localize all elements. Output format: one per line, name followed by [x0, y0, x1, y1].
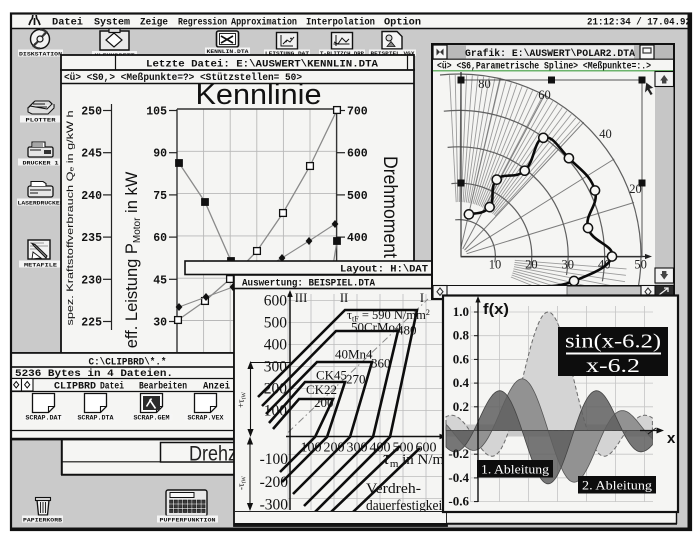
svg-text:-0.4: -0.4 [448, 470, 469, 485]
svg-text:sin(x-6.2): sin(x-6.2) [565, 331, 661, 353]
svg-text:Regression: Regression [178, 17, 227, 29]
svg-text:1. Ableitung: 1. Ableitung [481, 463, 550, 477]
svg-text:PAPIERKORB: PAPIERKORB [23, 517, 63, 524]
svg-text:270: 270 [346, 372, 366, 387]
svg-text:600: 600 [264, 293, 288, 310]
svg-text:Bearbeiten: Bearbeiten [139, 381, 187, 393]
svg-text:KENNLIN.DTA: KENNLIN.DTA [207, 48, 250, 55]
svg-text:METAFILE: METAFILE [24, 262, 58, 269]
svg-text:230: 230 [81, 274, 102, 287]
svg-text:200: 200 [314, 395, 334, 410]
svg-text:360: 360 [371, 356, 391, 371]
svg-text:SCRAP.DAT: SCRAP.DAT [26, 415, 62, 422]
svg-text:Approximation: Approximation [231, 17, 297, 29]
svg-text:spez. Kraftstoffverbrauch Qₑ i: spez. Kraftstoffverbrauch Qₑ in g/kW h [65, 110, 75, 325]
svg-text:CLIPBRD: CLIPBRD [54, 381, 96, 393]
svg-text:480: 480 [397, 323, 417, 338]
svg-text:2. Ableitung: 2. Ableitung [582, 479, 653, 493]
svg-text:400: 400 [347, 232, 368, 245]
svg-text:-0.6: -0.6 [448, 494, 469, 509]
svg-text:600: 600 [347, 148, 368, 161]
svg-text:Grafik: E:\AUSWERT\POLAR2.DTA: Grafik: E:\AUSWERT\POLAR2.DTA [465, 48, 636, 60]
svg-text:x: x [667, 430, 676, 447]
svg-text:0.8: 0.8 [453, 328, 470, 343]
svg-text:-300: -300 [260, 497, 289, 514]
svg-text:225: 225 [81, 317, 102, 330]
svg-text:II: II [340, 291, 348, 305]
svg-text:System: System [94, 17, 130, 29]
svg-text:C:\CLIPBRD\*.*: C:\CLIPBRD\*.* [89, 357, 167, 369]
svg-text:Zeige: Zeige [140, 17, 168, 29]
svg-text:I: I [420, 291, 424, 305]
svg-text:-100: -100 [260, 451, 289, 468]
svg-text:0.6: 0.6 [453, 351, 470, 366]
svg-text:PLOTTER: PLOTTER [26, 117, 57, 124]
svg-text:500: 500 [347, 190, 368, 203]
svg-text:SCRAP.VEX: SCRAP.VEX [188, 415, 224, 422]
svg-text:235: 235 [81, 232, 102, 245]
svg-text:Drehz: Drehz [189, 443, 237, 466]
svg-text:60: 60 [538, 88, 551, 102]
svg-text:60: 60 [153, 232, 167, 245]
svg-text:50: 50 [634, 258, 647, 272]
svg-text:Datei: Datei [52, 17, 83, 29]
svg-text:245: 245 [81, 148, 102, 161]
svg-text:20: 20 [525, 258, 538, 272]
svg-text:1.0: 1.0 [453, 304, 469, 319]
svg-text:30: 30 [562, 258, 575, 272]
svg-text:Datei: Datei [100, 381, 124, 393]
svg-text:Drehmoment: Drehmoment [379, 156, 400, 259]
svg-text:75: 75 [153, 190, 167, 203]
svg-text:0.2: 0.2 [453, 399, 469, 414]
svg-text:700: 700 [347, 106, 368, 119]
svg-text:DRUCKER 1: DRUCKER 1 [23, 160, 60, 167]
svg-text:eff. Leistung PMotor in kW: eff. Leistung PMotor in kW [123, 171, 143, 348]
svg-text:Letzte Datei: E:\AUSWERT\KENNL: Letzte Datei: E:\AUSWERT\KENNLIN.DTA [146, 59, 379, 71]
svg-text:30: 30 [153, 317, 167, 330]
svg-text:Layout: H:\DAT: Layout: H:\DAT [340, 264, 428, 276]
svg-text:90: 90 [153, 148, 167, 161]
svg-text:LASERDRUCKER: LASERDRUCKER [18, 200, 65, 207]
svg-text:III: III [295, 291, 308, 305]
svg-text:DISKSTATION: DISKSTATION [19, 51, 63, 58]
svg-text:<ü> <S6,Parametrische Spline>: <ü> <S6,Parametrische Spline> <Meßpunkte… [437, 61, 651, 72]
svg-text:x-6.2: x-6.2 [586, 355, 640, 377]
svg-text:45: 45 [153, 274, 167, 287]
svg-text:CK45: CK45 [316, 368, 347, 383]
svg-text:f(x): f(x) [483, 301, 509, 318]
svg-text:400: 400 [264, 337, 288, 354]
svg-text:Verdreh-: Verdreh- [366, 481, 421, 497]
svg-text:10: 10 [489, 258, 502, 272]
svg-text:SCRAP.DTA: SCRAP.DTA [78, 415, 114, 422]
svg-text:250: 250 [81, 106, 102, 119]
svg-text:50CrMo4: 50CrMo4 [351, 320, 402, 335]
svg-text:Anzei: Anzei [203, 381, 230, 393]
svg-text:Kennlinie: Kennlinie [196, 79, 322, 111]
svg-text:Option: Option [384, 17, 421, 29]
svg-text:-0.2: -0.2 [448, 446, 469, 461]
svg-text:SCRAP.GEM: SCRAP.GEM [134, 415, 170, 422]
svg-text:240: 240 [81, 190, 102, 203]
svg-text:40: 40 [599, 127, 612, 141]
svg-text:21:12:34 / 17.04.92: 21:12:34 / 17.04.92 [587, 17, 691, 29]
svg-text:-200: -200 [260, 474, 289, 491]
svg-text:500: 500 [264, 315, 288, 332]
svg-text:Interpolation: Interpolation [306, 17, 375, 29]
svg-text:105: 105 [146, 106, 167, 119]
svg-text:80: 80 [478, 77, 491, 91]
svg-text:Auswertung: BEISPIEL.DTA: Auswertung: BEISPIEL.DTA [242, 278, 376, 290]
svg-text:40Mn4: 40Mn4 [335, 347, 373, 362]
svg-text:PUFFERFUNKTION: PUFFERFUNKTION [160, 517, 217, 524]
svg-text:0.4: 0.4 [453, 375, 470, 390]
